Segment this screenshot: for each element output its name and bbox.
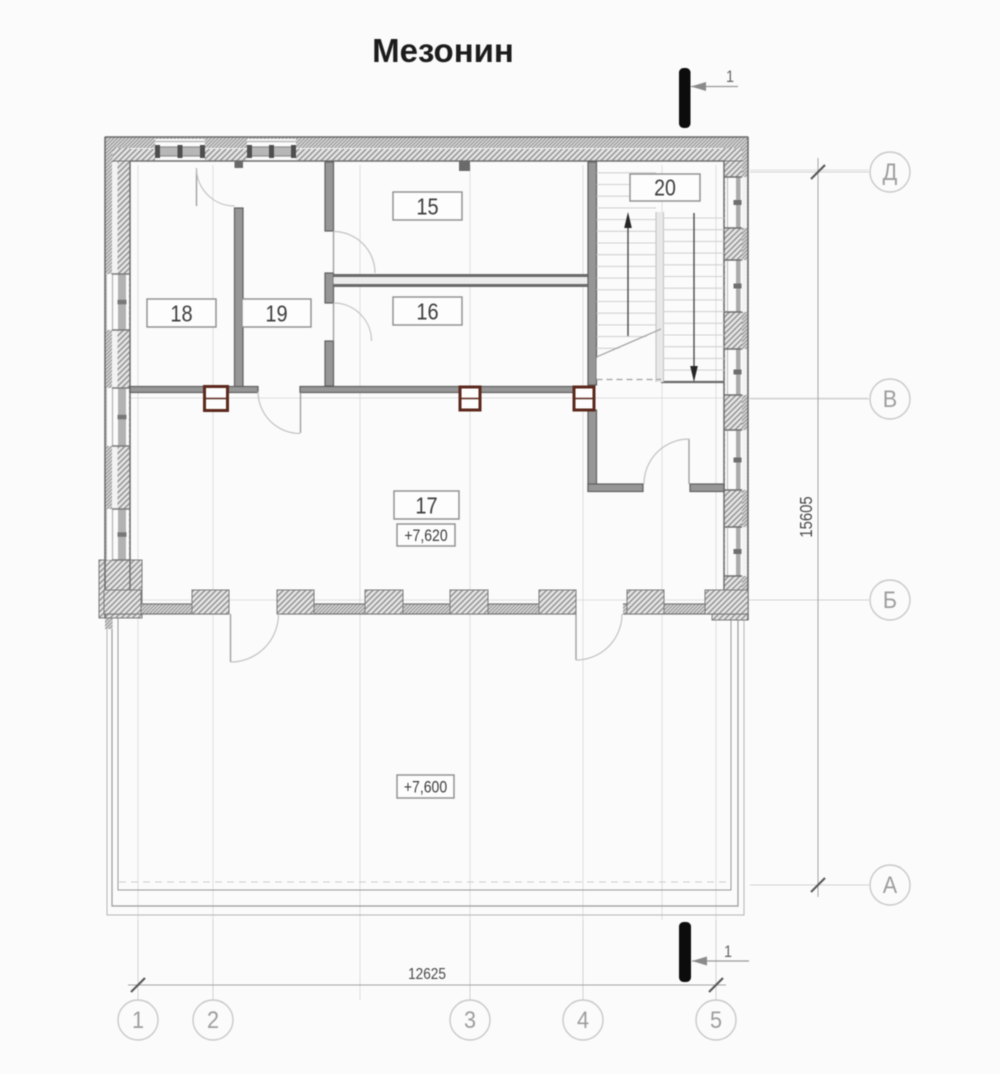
svg-text:15: 15 (416, 193, 438, 220)
svg-text:Б: Б (883, 586, 897, 613)
svg-text:В: В (883, 385, 897, 412)
svg-text:15605: 15605 (797, 496, 816, 537)
svg-text:+7,600: +7,600 (404, 778, 447, 796)
svg-text:12625: 12625 (408, 966, 446, 983)
svg-text:2: 2 (207, 1006, 219, 1033)
svg-text:17: 17 (415, 492, 437, 519)
svg-text:5: 5 (710, 1006, 722, 1033)
svg-text:20: 20 (654, 175, 676, 201)
svg-text:18: 18 (170, 300, 192, 327)
svg-text:А: А (883, 871, 898, 898)
svg-text:1: 1 (724, 943, 732, 961)
svg-text:Д: Д (883, 158, 898, 185)
svg-text:Мезонин: Мезонин (372, 32, 514, 69)
svg-text:1: 1 (132, 1006, 144, 1033)
svg-text:+7,620: +7,620 (404, 527, 447, 545)
svg-text:4: 4 (577, 1006, 589, 1033)
svg-text:1: 1 (726, 68, 734, 86)
svg-text:19: 19 (265, 300, 287, 327)
svg-text:16: 16 (416, 298, 438, 325)
svg-text:3: 3 (464, 1006, 476, 1033)
